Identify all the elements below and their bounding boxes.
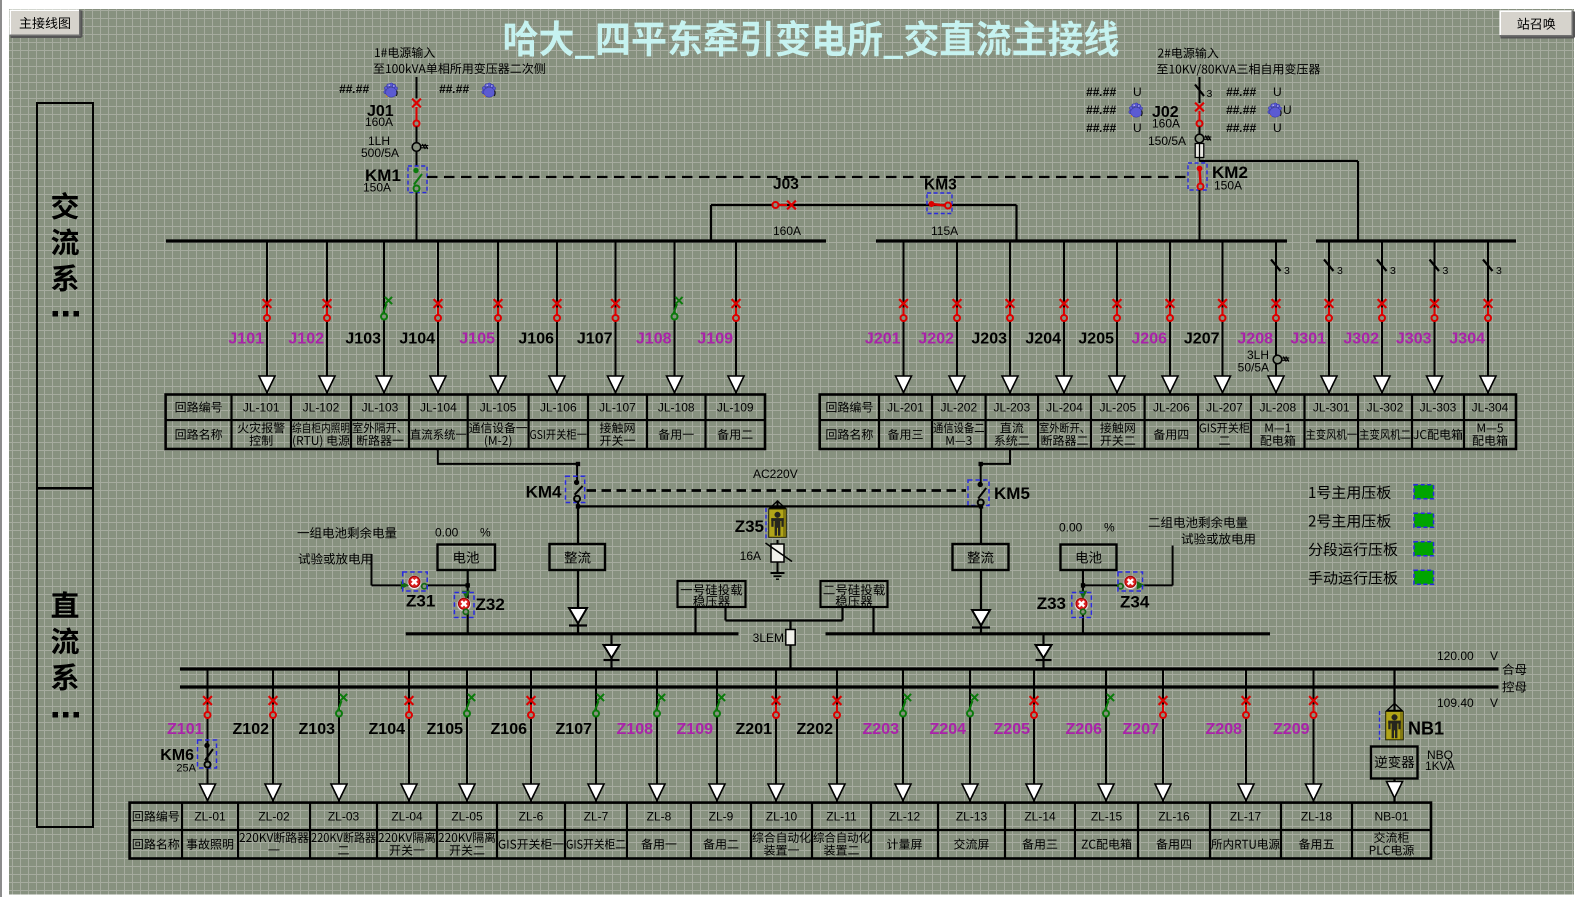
svg-text:16A: 16A [740, 549, 761, 563]
svg-text:115A: 115A [931, 224, 958, 238]
svg-text:Z102: Z102 [233, 721, 270, 738]
svg-text:J304: J304 [1449, 331, 1485, 348]
svg-text:JL-207: JL-207 [1206, 400, 1243, 414]
svg-text:##.##: ##.## [1086, 103, 1116, 117]
svg-text:JL-205: JL-205 [1099, 400, 1136, 414]
svg-text:J03: J03 [773, 176, 799, 193]
svg-text:JL-206: JL-206 [1153, 400, 1190, 414]
svg-text:ZL-03: ZL-03 [328, 810, 360, 824]
svg-text:Z206: Z206 [1066, 721, 1103, 738]
svg-text:ZL-01: ZL-01 [194, 810, 226, 824]
svg-text:ZL-9: ZL-9 [709, 810, 734, 824]
svg-text:Z106: Z106 [491, 721, 528, 738]
svg-text:JL-109: JL-109 [717, 400, 754, 414]
svg-text:J105: J105 [459, 331, 495, 348]
svg-text:3LEM: 3LEM [753, 631, 784, 645]
svg-text:ZL-15: ZL-15 [1091, 810, 1123, 824]
svg-text:J103: J103 [345, 331, 381, 348]
svg-text:Z32: Z32 [476, 595, 505, 614]
svg-text:##.##: ##.## [1226, 85, 1256, 99]
svg-text:25A: 25A [176, 763, 196, 775]
svg-text:##.##: ##.## [439, 82, 469, 96]
svg-text:Z33: Z33 [1037, 594, 1066, 613]
svg-text:Z103: Z103 [299, 721, 336, 738]
svg-text:V: V [1490, 696, 1498, 710]
svg-text:3: 3 [1337, 265, 1343, 277]
svg-text:500/5A: 500/5A [361, 146, 399, 160]
svg-text:109.40: 109.40 [1437, 696, 1474, 710]
svg-text:ZL-12: ZL-12 [889, 810, 921, 824]
svg-text:Z207: Z207 [1123, 721, 1160, 738]
svg-text:JL-105: JL-105 [480, 400, 517, 414]
svg-text:50/5A: 50/5A [1238, 361, 1269, 375]
svg-text:J109: J109 [697, 331, 733, 348]
svg-text:J107: J107 [577, 331, 613, 348]
svg-text:Z202: Z202 [797, 721, 834, 738]
svg-text:JL-304: JL-304 [1472, 400, 1509, 414]
svg-text:0.00: 0.00 [1059, 521, 1083, 535]
svg-text:Z204: Z204 [930, 721, 967, 738]
svg-text:JL-302: JL-302 [1367, 400, 1404, 414]
svg-text:3: 3 [1207, 88, 1213, 100]
svg-text:ZL-10: ZL-10 [766, 810, 798, 824]
svg-text:J101: J101 [228, 331, 264, 348]
svg-text:J205: J205 [1078, 331, 1114, 348]
svg-text:JL-106: JL-106 [540, 400, 577, 414]
svg-text:KM5: KM5 [994, 484, 1030, 503]
svg-text:JL-101: JL-101 [243, 400, 280, 414]
svg-text:Z31: Z31 [406, 592, 435, 611]
svg-text:120.00: 120.00 [1437, 649, 1474, 663]
svg-text:JL-301: JL-301 [1313, 400, 1350, 414]
svg-text:J207: J207 [1184, 331, 1220, 348]
svg-text:ZL-8: ZL-8 [647, 810, 672, 824]
svg-text:ZL-13: ZL-13 [956, 810, 988, 824]
svg-text:Z209: Z209 [1273, 721, 1310, 738]
svg-text:Z108: Z108 [617, 721, 654, 738]
svg-text:J104: J104 [399, 331, 435, 348]
svg-text:NB1: NB1 [1408, 719, 1444, 739]
svg-text:JL-104: JL-104 [420, 400, 457, 414]
svg-text:3: 3 [1390, 265, 1396, 277]
svg-text:U: U [1273, 121, 1282, 135]
svg-text:ZL-14: ZL-14 [1024, 810, 1056, 824]
svg-text:JL-107: JL-107 [599, 400, 636, 414]
svg-text:ZL-18: ZL-18 [1301, 810, 1333, 824]
svg-text:JL-303: JL-303 [1420, 400, 1457, 414]
svg-text:Z105: Z105 [427, 721, 464, 738]
svg-text:0.00: 0.00 [435, 526, 459, 540]
svg-text:150A: 150A [1214, 179, 1242, 193]
svg-text:3: 3 [1496, 265, 1502, 277]
svg-text:160A: 160A [773, 224, 801, 238]
svg-text:JL-204: JL-204 [1046, 400, 1083, 414]
svg-text:J106: J106 [518, 331, 554, 348]
svg-text:3: 3 [1443, 265, 1449, 277]
svg-text:Z205: Z205 [994, 721, 1031, 738]
svg-text:J303: J303 [1396, 331, 1432, 348]
svg-text:Z107: Z107 [556, 721, 593, 738]
svg-text:J203: J203 [971, 331, 1007, 348]
svg-text:##.##: ##.## [339, 82, 369, 96]
svg-text:##.##: ##.## [1086, 121, 1116, 135]
svg-text:Z101: Z101 [167, 721, 204, 738]
svg-text:##.##: ##.## [1086, 85, 1116, 99]
svg-text:ZL-02: ZL-02 [258, 810, 290, 824]
svg-text:ZL-04: ZL-04 [391, 810, 423, 824]
svg-text:##.##: ##.## [1226, 103, 1256, 117]
svg-text:NB-01: NB-01 [1374, 810, 1408, 824]
svg-text:J108: J108 [636, 331, 672, 348]
svg-text:J102: J102 [288, 331, 324, 348]
svg-text:Z109: Z109 [677, 721, 714, 738]
svg-text:JL-208: JL-208 [1259, 400, 1296, 414]
svg-text:Z35: Z35 [735, 517, 764, 536]
svg-text:U: U [1273, 85, 1282, 99]
svg-text:J202: J202 [918, 331, 954, 348]
svg-text:3: 3 [1284, 265, 1290, 277]
svg-text:Z34: Z34 [1120, 593, 1150, 612]
svg-text:160A: 160A [1152, 117, 1180, 131]
svg-text:ZL-6: ZL-6 [519, 810, 544, 824]
svg-text:Z203: Z203 [863, 721, 900, 738]
svg-text:KM3: KM3 [924, 177, 957, 194]
svg-text:V: V [1490, 649, 1498, 663]
svg-text:150A: 150A [363, 181, 391, 195]
svg-text:1KVA: 1KVA [1425, 759, 1455, 773]
svg-text:JL-102: JL-102 [303, 400, 340, 414]
svg-text:U: U [1283, 103, 1292, 117]
svg-text:ZL-17: ZL-17 [1230, 810, 1262, 824]
svg-text:J301: J301 [1290, 331, 1326, 348]
svg-text:ZL-16: ZL-16 [1158, 810, 1190, 824]
svg-text:Z201: Z201 [736, 721, 773, 738]
svg-text:JL-103: JL-103 [362, 400, 399, 414]
svg-text:ZL-11: ZL-11 [826, 810, 857, 824]
svg-text:JL-202: JL-202 [940, 400, 977, 414]
svg-text:J302: J302 [1343, 331, 1379, 348]
svg-text:JL-201: JL-201 [887, 400, 924, 414]
svg-text:%: % [1104, 521, 1115, 535]
svg-text:Z208: Z208 [1206, 721, 1243, 738]
svg-text:KM6: KM6 [160, 747, 194, 764]
svg-text:JL-203: JL-203 [993, 400, 1030, 414]
svg-text:150/5A: 150/5A [1148, 134, 1186, 148]
svg-text:J208: J208 [1237, 331, 1273, 348]
svg-text:##.##: ##.## [1226, 121, 1256, 135]
svg-text:KM4: KM4 [526, 483, 562, 502]
svg-text:U: U [1133, 121, 1142, 135]
svg-text:AC220V: AC220V [753, 467, 798, 481]
svg-text:ZL-7: ZL-7 [584, 810, 609, 824]
svg-text:160A: 160A [365, 115, 393, 129]
svg-text:U: U [1133, 85, 1142, 99]
svg-text:J204: J204 [1025, 331, 1061, 348]
svg-text:%: % [480, 526, 491, 540]
svg-text:ZL-05: ZL-05 [451, 810, 483, 824]
svg-text:J206: J206 [1131, 331, 1167, 348]
svg-text:Z104: Z104 [369, 721, 406, 738]
svg-text:JL-108: JL-108 [658, 400, 695, 414]
svg-text:J201: J201 [865, 331, 901, 348]
